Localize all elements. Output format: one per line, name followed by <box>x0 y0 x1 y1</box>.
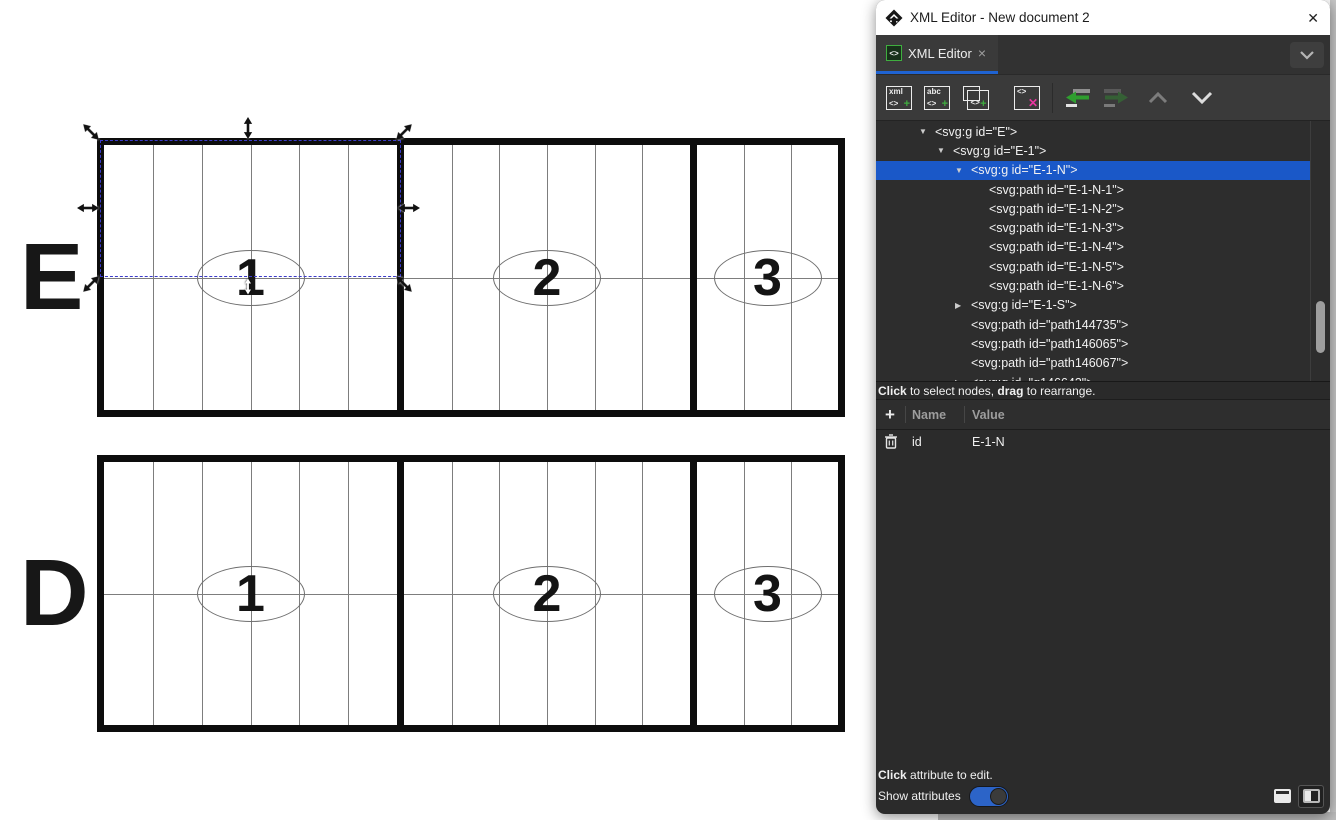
tree-row[interactable]: <svg:path id="path146067"> <box>876 354 1310 373</box>
attribute-row[interactable]: idE-1-N <box>876 430 1330 454</box>
delete-attribute-icon[interactable] <box>884 434 898 449</box>
panel-menu-button[interactable] <box>1290 42 1324 68</box>
figure-D-section-3[interactable]: 3 <box>697 462 838 725</box>
xml-tree-rows: ▼<svg:g id="E">▼<svg:g id="E-1">▼<svg:g … <box>876 122 1310 381</box>
section-number-ellipse[interactable]: 1 <box>197 566 305 622</box>
dialog-tabbar: <> XML Editor × <box>876 35 1330 75</box>
show-attributes-toggle[interactable] <box>969 786 1009 807</box>
chevron-down-icon <box>1191 90 1213 105</box>
tree-row[interactable]: <svg:path id="E-1-N-3"> <box>876 218 1310 237</box>
expander-closed-icon[interactable]: ▶ <box>955 378 971 381</box>
chevron-up-icon <box>1148 91 1168 105</box>
delete-node-icon: <> ✕ <box>1014 86 1040 110</box>
node-label: <svg:path id="path144735"> <box>971 318 1128 332</box>
scale-handle-s-icon[interactable] <box>235 273 261 299</box>
toolbar-separator <box>1052 83 1053 113</box>
tree-row[interactable]: <svg:path id="E-1-N-2"> <box>876 199 1310 218</box>
attribute-hint-text: Click attribute to edit. <box>876 766 1330 784</box>
inkscape-logo-icon <box>885 9 903 27</box>
figure-letter-D[interactable]: D <box>20 546 90 641</box>
tab-label: XML Editor <box>908 46 972 61</box>
node-label: <svg:g id="E"> <box>935 125 1017 139</box>
tab-close-icon[interactable]: × <box>978 45 986 61</box>
tree-row[interactable]: <svg:path id="E-1-N-1"> <box>876 180 1310 199</box>
section-number-ellipse[interactable]: 2 <box>493 566 601 622</box>
chevron-down-icon <box>1299 49 1315 61</box>
xml-editor-dialog: XML Editor - New document 2 ✕ <> XML Edi… <box>876 0 1330 814</box>
node-label: <svg:path id="E-1-N-5"> <box>989 260 1124 274</box>
node-label: <svg:g id="E-1-S"> <box>971 298 1077 312</box>
new-text-node-icon: abc <> + <box>924 86 950 110</box>
section-number-ellipse[interactable]: 3 <box>714 566 822 622</box>
tree-row[interactable]: <svg:path id="path144735"> <box>876 315 1310 334</box>
section-number: 3 <box>753 252 782 304</box>
attributes-empty-area <box>876 454 1330 766</box>
show-attributes-label: Show attributes <box>878 789 961 803</box>
new-text-node-button[interactable]: abc <> + <box>920 81 954 115</box>
unindent-node-icon <box>1065 88 1091 108</box>
duplicate-node-button[interactable]: <> + <box>958 81 992 115</box>
scale-handle-sw-icon[interactable] <box>78 271 104 297</box>
section-number-ellipse[interactable]: 3 <box>714 250 822 306</box>
xml-toolbar: xml <> + abc <> + <> + <box>876 75 1330 120</box>
new-element-node-button[interactable]: xml <> + <box>882 81 916 115</box>
scale-handle-e-icon[interactable] <box>396 195 422 221</box>
tree-row[interactable]: <svg:path id="E-1-N-6"> <box>876 276 1310 295</box>
layout-columns-button[interactable] <box>1298 785 1324 808</box>
scale-handle-n-icon[interactable] <box>235 115 261 141</box>
tree-row[interactable]: ▼<svg:g id="E-1-N"> <box>876 161 1310 180</box>
attr-value-column-header: Value <box>972 408 1005 422</box>
expander-open-icon[interactable]: ▼ <box>919 127 935 136</box>
move-node-down-button[interactable] <box>1185 81 1219 115</box>
attributes-table: idE-1-N <box>876 430 1330 454</box>
attribute-name[interactable]: id <box>912 435 922 449</box>
columns-layout-icon <box>1303 789 1320 803</box>
node-label: <svg:path id="E-1-N-3"> <box>989 221 1124 235</box>
expander-open-icon[interactable]: ▼ <box>955 166 971 175</box>
attributes-header: + Name Value <box>876 399 1330 430</box>
tree-row[interactable]: ▶<svg:g id="g146643"> <box>876 373 1310 381</box>
node-label: <svg:g id="E-1"> <box>953 144 1046 158</box>
attribute-value[interactable]: E-1-N <box>972 435 1005 449</box>
indent-node-button[interactable] <box>1099 81 1133 115</box>
node-label: <svg:path id="E-1-N-4"> <box>989 240 1124 254</box>
move-node-up-button[interactable] <box>1141 81 1175 115</box>
section-number: 2 <box>533 568 562 620</box>
section-number-ellipse[interactable]: 2 <box>493 250 601 306</box>
section-number: 1 <box>236 568 265 620</box>
new-element-node-icon: xml <> + <box>886 86 912 110</box>
scale-handle-w-icon[interactable] <box>75 195 101 221</box>
indent-node-icon <box>1103 88 1129 108</box>
node-label: <svg:path id="E-1-N-6"> <box>989 279 1124 293</box>
figure-E[interactable]: 123 <box>97 138 845 417</box>
tree-row[interactable]: <svg:path id="E-1-N-5"> <box>876 257 1310 276</box>
add-attribute-button[interactable]: + <box>876 405 904 425</box>
inkscape-workspace: E123D123 XML Editor - New document 2 ✕ <… <box>0 0 1336 820</box>
delete-node-button[interactable]: <> ✕ <box>1010 81 1044 115</box>
node-label: <svg:path id="path146065"> <box>971 337 1128 351</box>
node-label: <svg:path id="E-1-N-2"> <box>989 202 1124 216</box>
figure-D-section-1[interactable]: 1 <box>104 462 397 725</box>
xml-node-tree: ▼<svg:g id="E">▼<svg:g id="E-1">▼<svg:g … <box>876 120 1330 381</box>
node-label: <svg:g id="g146643"> <box>971 376 1094 382</box>
scale-handle-ne-icon[interactable] <box>391 119 417 145</box>
figure-D[interactable]: 123 <box>97 455 845 732</box>
tree-scrollbar-track <box>1310 121 1311 381</box>
node-label: <svg:path id="E-1-N-1"> <box>989 183 1124 197</box>
header-separator <box>964 406 965 423</box>
figure-D-section-2[interactable]: 2 <box>404 462 690 725</box>
attr-name-column-header: Name <box>912 408 946 422</box>
dialog-titlebar[interactable]: XML Editor - New document 2 ✕ <box>876 0 1330 35</box>
toggle-knob <box>990 788 1007 805</box>
header-separator <box>905 406 906 423</box>
duplicate-node-icon: <> + <box>967 90 989 110</box>
tree-row[interactable]: ▼<svg:g id="E-1"> <box>876 141 1310 160</box>
xml-tag-icon: <> <box>886 45 902 61</box>
tab-xml-editor[interactable]: <> XML Editor × <box>876 35 998 74</box>
rows-layout-icon <box>1274 789 1291 803</box>
tree-scrollbar-thumb[interactable] <box>1316 301 1325 353</box>
figure-E-section-3[interactable]: 3 <box>697 145 838 410</box>
tree-hint-text: Click to select nodes, drag to rearrange… <box>876 381 1330 399</box>
unindent-node-button[interactable] <box>1061 81 1095 115</box>
figure-E-section-2[interactable]: 2 <box>404 145 690 410</box>
scale-handle-nw-icon[interactable] <box>78 119 104 145</box>
node-label: <svg:path id="path146067"> <box>971 356 1128 370</box>
layout-rows-button[interactable] <box>1269 785 1295 808</box>
node-label: <svg:g id="E-1-N"> <box>971 163 1078 177</box>
tree-row[interactable]: ▼<svg:g id="E"> <box>876 122 1310 141</box>
section-number: 2 <box>533 252 562 304</box>
dialog-title: XML Editor - New document 2 <box>910 10 1090 25</box>
section-number: 3 <box>753 568 782 620</box>
dialog-footer: Show attributes <box>876 784 1330 814</box>
dialog-close-button[interactable]: ✕ <box>1307 11 1319 25</box>
tree-row[interactable]: <svg:path id="path146065"> <box>876 334 1310 353</box>
tree-row[interactable]: ▶<svg:g id="E-1-S"> <box>876 296 1310 315</box>
tree-row[interactable]: <svg:path id="E-1-N-4"> <box>876 238 1310 257</box>
expander-open-icon[interactable]: ▼ <box>937 146 953 155</box>
canvas-vertical-scrollbar[interactable] <box>1330 0 1336 820</box>
expander-closed-icon[interactable]: ▶ <box>955 301 971 310</box>
scale-handle-se-icon[interactable] <box>391 271 417 297</box>
